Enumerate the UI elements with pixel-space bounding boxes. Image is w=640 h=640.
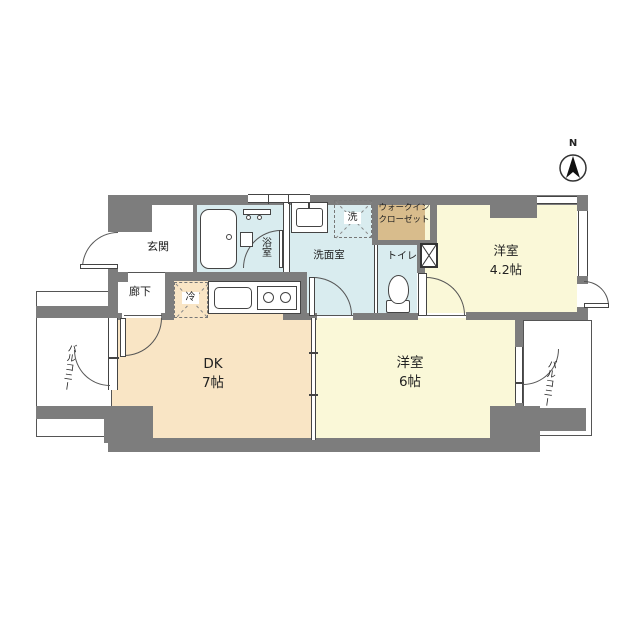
bath-shelf — [240, 232, 253, 247]
compass: N — [551, 138, 595, 186]
threshold — [124, 315, 162, 316]
partition-tick — [309, 352, 318, 354]
wall-toilet-south — [378, 313, 418, 320]
refrigerator-label: 冷 — [182, 292, 199, 304]
wall-south-b — [353, 313, 378, 320]
wall-right-upper — [577, 195, 588, 211]
wall-bath-washroom — [283, 198, 290, 272]
bathtub — [200, 209, 237, 269]
washer-label: 洗 — [344, 212, 361, 224]
toilet-bowl — [388, 275, 409, 304]
room42-size: 4.2帖 — [478, 263, 534, 277]
wall-genkan-east — [193, 205, 197, 272]
bathroom-door-leaf — [279, 230, 283, 268]
wall-kitchen-north — [165, 272, 307, 281]
closet-label: ウォークイン クローゼット — [376, 202, 432, 226]
wall-bottom — [108, 438, 540, 452]
wall-top-left-block — [108, 195, 152, 232]
wall-room6-east-upper — [515, 313, 523, 347]
floor-plan: 玄関 廊下 浴室 洗面室 洗 冷 トイレ ウォークイン クローゼット 洋室 4.… — [0, 0, 640, 640]
wall-washroom-toilet — [374, 245, 378, 315]
room42-outside-door-leaf — [584, 303, 609, 308]
entrance-door-arc — [82, 232, 118, 268]
room42-label: 洋室 — [478, 244, 534, 258]
wall-washroom-west-lower — [300, 281, 307, 315]
wall-south-c — [466, 312, 588, 320]
washbasin-bowl — [296, 208, 323, 227]
rouka-label: 廊下 — [116, 286, 164, 299]
kitchen-sink — [214, 287, 252, 309]
toilet-label: トイレ — [382, 251, 422, 263]
hallway-dk-door-leaf — [120, 318, 126, 357]
stove-burner — [280, 292, 291, 303]
yokushitsu-label: 浴室 — [259, 228, 271, 266]
bathtub-drain — [226, 234, 232, 240]
room6-label: 洋室 — [383, 356, 437, 372]
compass-icon — [551, 150, 595, 186]
threshold — [426, 315, 466, 316]
balcony-right-bottom-wall — [523, 408, 586, 431]
shower-knob — [257, 215, 262, 220]
dk-label: DK — [186, 357, 240, 373]
balcony-left-bottom-wall — [36, 406, 106, 419]
room6-balcony-window — [515, 347, 523, 403]
balcony-left-top-wall — [36, 306, 110, 318]
wall-hallway-south-stub-east — [161, 313, 174, 320]
wall-notch-42 — [490, 195, 537, 218]
washbasin-faucet — [308, 202, 310, 209]
room42-right-window — [578, 211, 588, 276]
stove-burner — [263, 292, 274, 303]
dk-size: 7帖 — [186, 376, 240, 392]
threshold — [313, 315, 353, 316]
genkan-step-line — [128, 272, 165, 273]
genkan-label: 玄関 — [132, 241, 184, 254]
room42-door-leaf — [418, 273, 427, 316]
wall-genkan-step-stub — [108, 272, 128, 282]
washroom-door-leaf — [309, 277, 315, 316]
shower-knob — [246, 215, 251, 220]
pipe-shaft — [420, 243, 438, 268]
sliding-partition — [311, 318, 316, 440]
entrance-door-leaf — [80, 264, 118, 269]
wall-room6-east-lower — [515, 403, 523, 412]
room6-size: 6帖 — [383, 375, 437, 391]
senmenshitsu-label: 洗面室 — [303, 249, 355, 261]
compass-north-label: N — [551, 138, 595, 150]
room42-top-window — [537, 196, 577, 204]
partition-tick — [309, 394, 318, 396]
